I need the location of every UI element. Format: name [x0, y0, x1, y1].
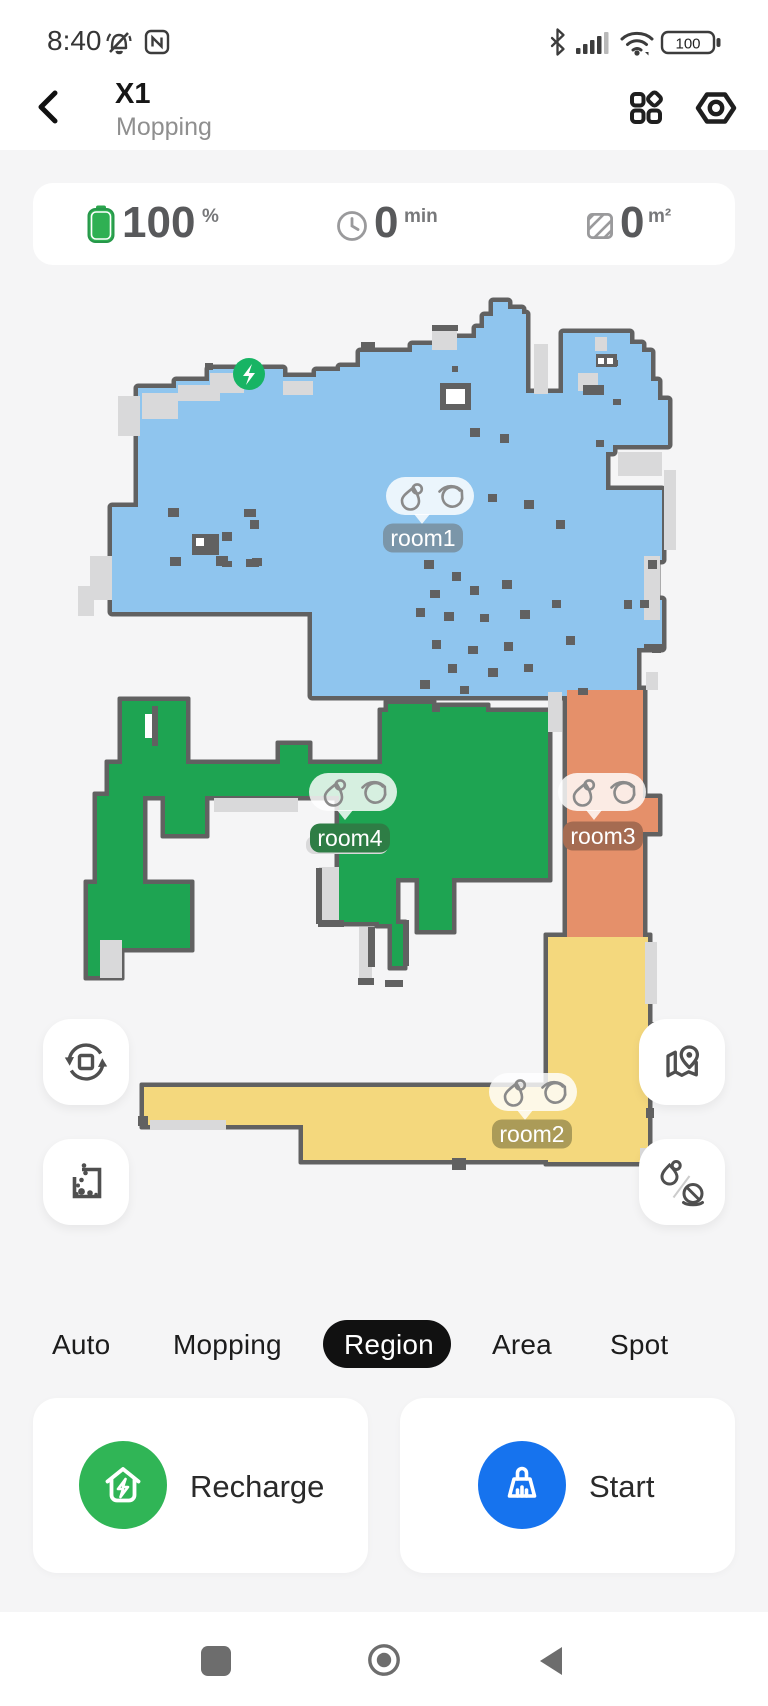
svg-text:room2: room2 — [499, 1121, 564, 1147]
svg-text:room4: room4 — [317, 825, 382, 851]
svg-text:room1: room1 — [390, 525, 455, 551]
svg-text:room3: room3 — [570, 823, 635, 849]
